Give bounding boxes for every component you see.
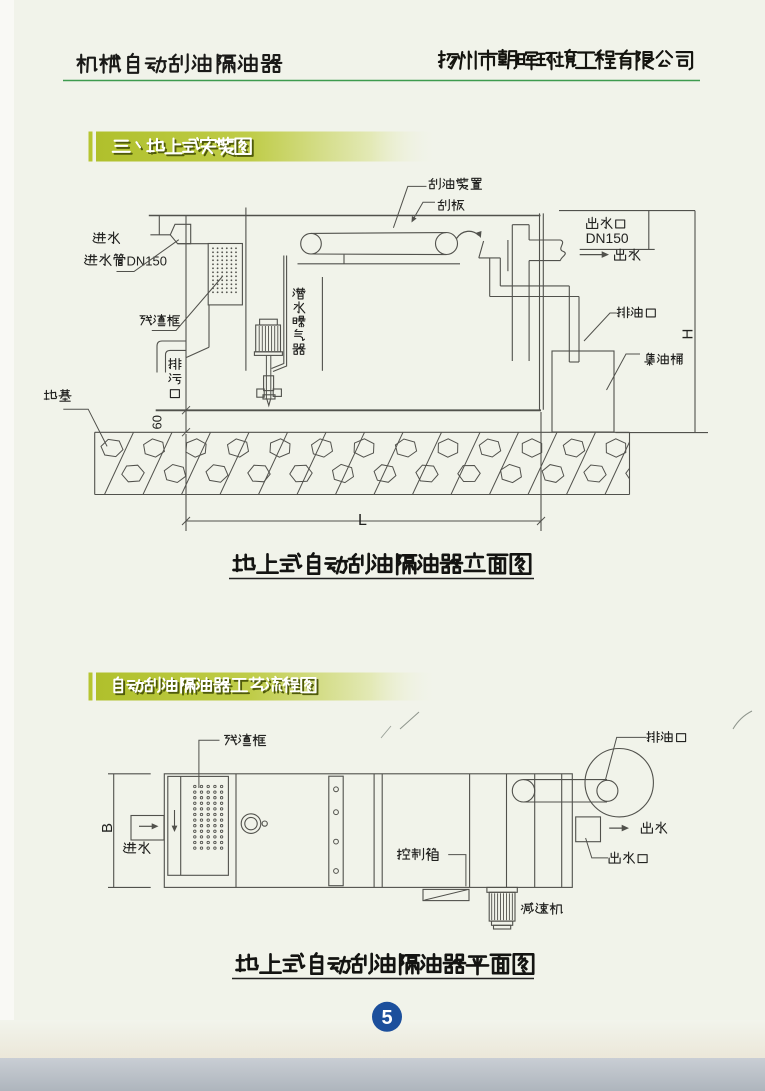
- svg-text:B: B: [99, 823, 116, 833]
- svg-text:H: H: [680, 329, 697, 340]
- svg-text:DN150: DN150: [586, 231, 629, 246]
- svg-text:DN150: DN150: [127, 253, 167, 268]
- svg-text:5: 5: [381, 1007, 392, 1029]
- svg-text:60: 60: [150, 415, 165, 429]
- svg-text:L: L: [358, 512, 367, 529]
